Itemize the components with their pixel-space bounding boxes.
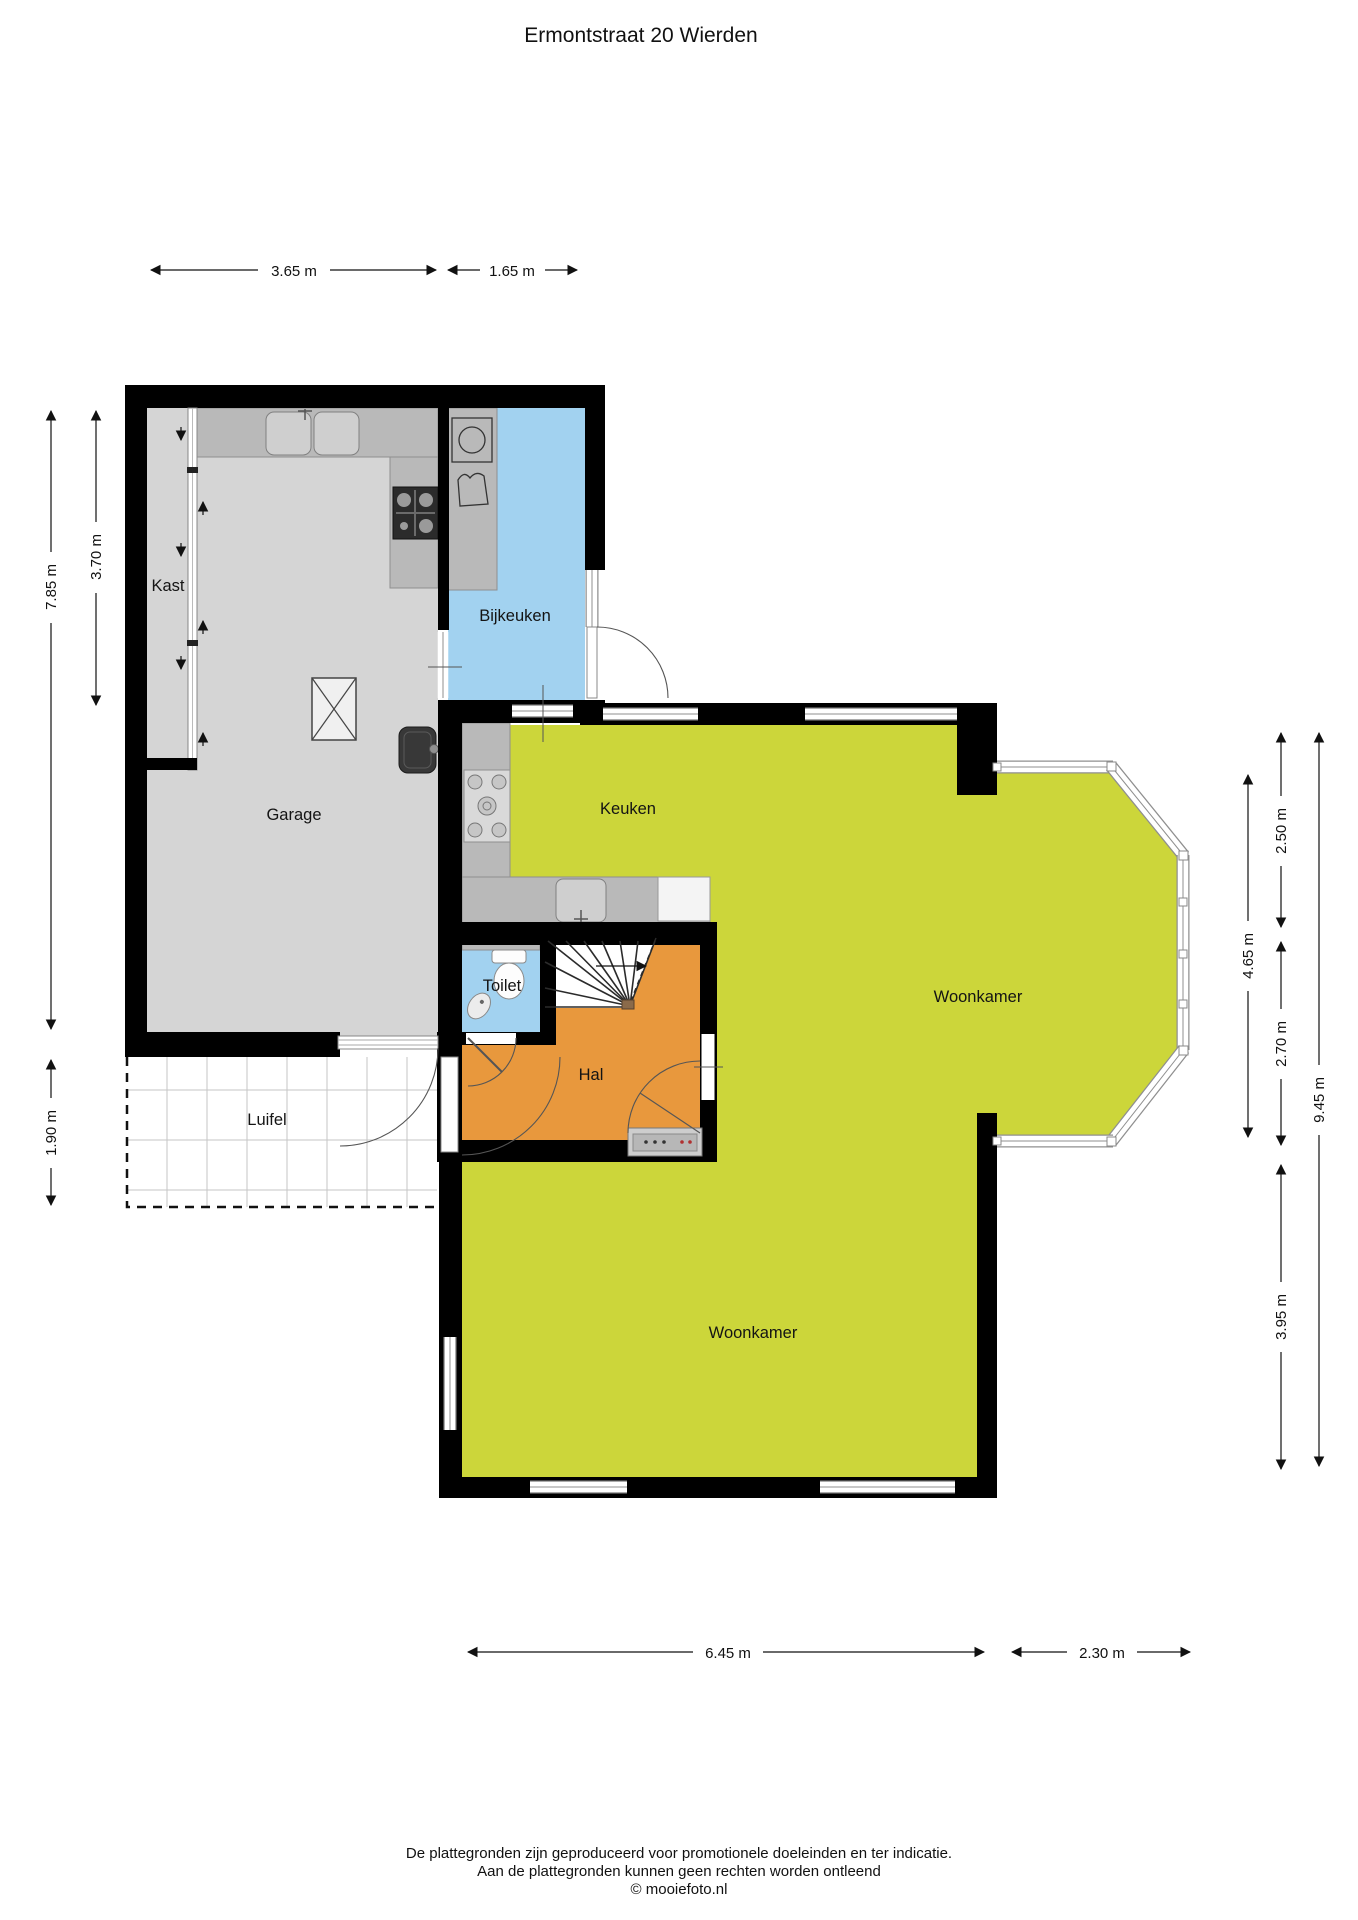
dishwasher-icon [658, 877, 710, 921]
label-bijkeuken: Bijkeuken [479, 607, 551, 625]
footer-line2: Aan de plattegronden kunnen geen rechten… [477, 1863, 881, 1880]
page-title: Ermontstraat 20 Wierden [524, 24, 757, 47]
back-door-arc [597, 627, 668, 698]
bijkeuken-counter [448, 408, 497, 590]
dim-top-garage: 3.65 m [271, 263, 317, 280]
hatch-icon [312, 678, 356, 740]
garage-door-arc [340, 1048, 438, 1146]
dim-right-lower: 3.95 m [1273, 1294, 1290, 1340]
keuken-sink-icon [556, 879, 606, 922]
footer-line1: De plattegronden zijn geproduceerd voor … [406, 1845, 952, 1862]
label-woonkamer-upper: Woonkamer [934, 988, 1023, 1006]
dim-left-garage: 7.85 m [43, 564, 60, 610]
dim-right-hal: 2.70 m [1273, 1021, 1290, 1067]
stove-icon [399, 727, 439, 773]
label-woonkamer-lower: Woonkamer [709, 1324, 798, 1342]
wall-top [125, 385, 605, 408]
label-hal: Hal [579, 1066, 604, 1084]
floorplan-canvas: 3.65 m 1.65 m 3.70 m 7.85 m 1.90 m 2.50 … [0, 0, 1358, 1920]
double-sink-icon-2 [314, 412, 359, 455]
stairs-pole [622, 1000, 634, 1009]
label-toilet: Toilet [483, 977, 522, 995]
wall-garage-bottom [125, 1032, 340, 1057]
dim-bottom-bay: 2.30 m [1079, 1645, 1125, 1662]
wall-bijkeuken-right-top [585, 385, 605, 570]
wall-hal-top [438, 922, 717, 945]
wall-lower-left [439, 1162, 462, 1498]
keuken-hob-icon [464, 770, 510, 842]
dim-right-upper: 2.50 m [1273, 808, 1290, 854]
footer-line3: © mooiefoto.nl [631, 1881, 728, 1898]
wall-left [125, 385, 147, 1057]
label-keuken: Keuken [600, 800, 656, 818]
garage-hob-icon [393, 487, 438, 539]
wall-stub-bay [957, 703, 997, 795]
back-door [587, 627, 597, 698]
footer: De plattegronden zijn geproduceerd voor … [406, 1845, 952, 1898]
label-luifel: Luifel [247, 1111, 286, 1129]
dim-left-kast: 3.70 m [88, 534, 105, 580]
dim-bottom-main: 6.45 m [705, 1645, 751, 1662]
dim-right-bay: 4.65 m [1240, 933, 1257, 979]
doormat-door [628, 1128, 702, 1156]
wall-garage-bijkeuken [438, 408, 449, 630]
wall-lower-right [977, 1113, 997, 1498]
dim-left-luifel: 1.90 m [43, 1110, 60, 1156]
label-kast: Kast [151, 577, 184, 595]
front-door [441, 1057, 458, 1152]
dim-right-total: 9.45 m [1311, 1077, 1328, 1123]
wall-garage-right [438, 700, 462, 1032]
wall-toilet-right [540, 925, 556, 1045]
label-garage: Garage [266, 806, 321, 824]
garage-door [338, 1036, 438, 1049]
dim-top-bijkeuken: 1.65 m [489, 263, 535, 280]
